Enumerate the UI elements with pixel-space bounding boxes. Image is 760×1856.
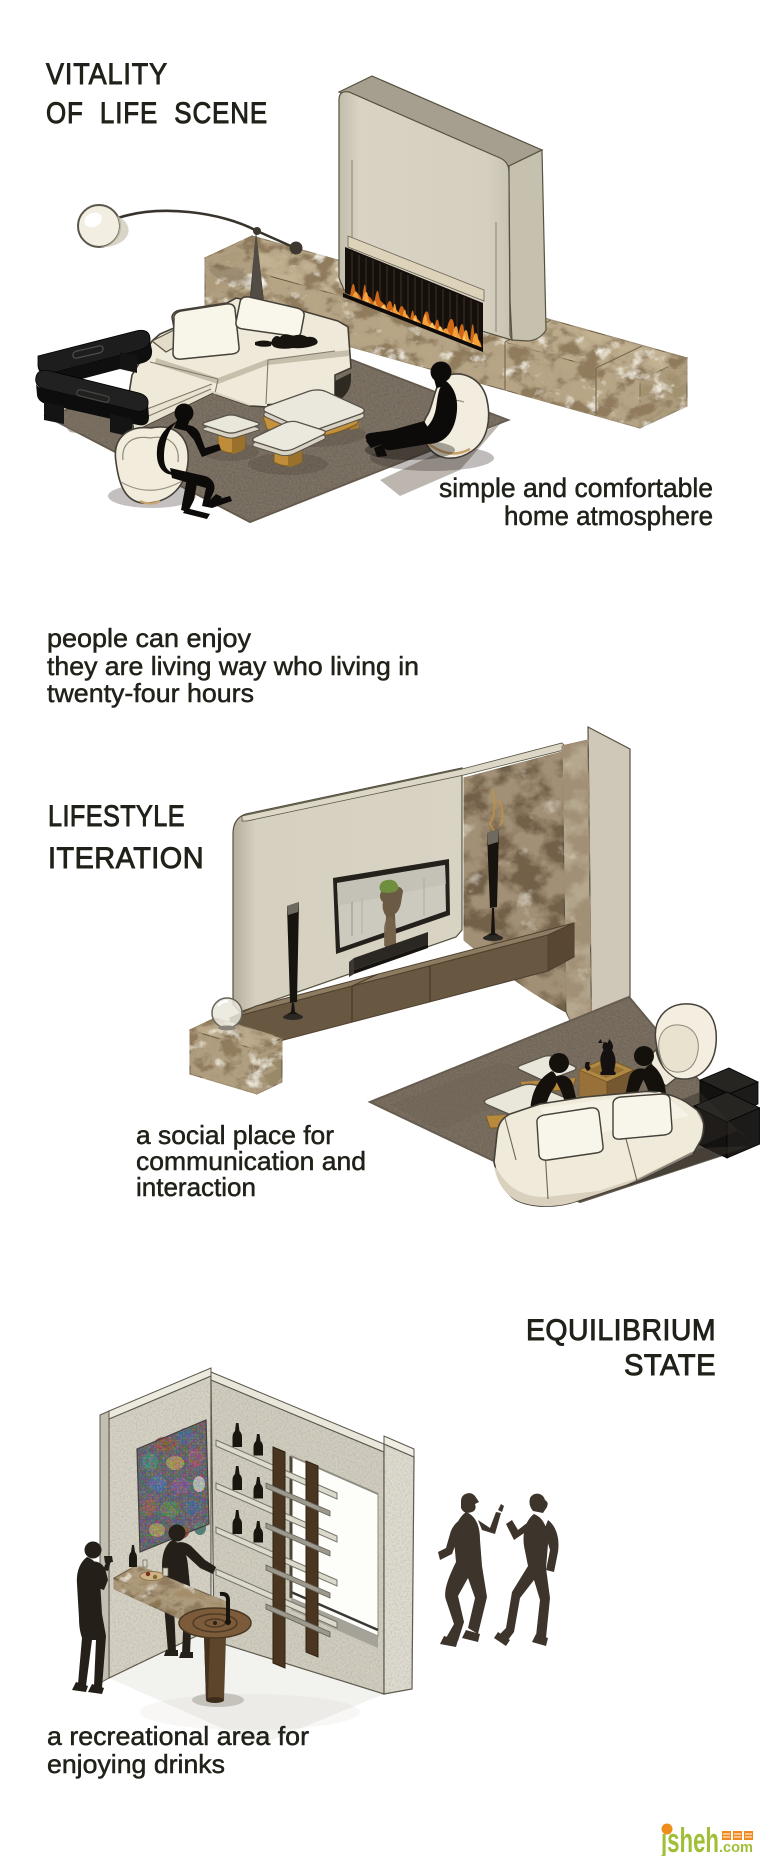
- svg-text:they are living way who living: they are living way who living in: [47, 651, 419, 681]
- svg-text:EQUILIBRIUM: EQUILIBRIUM: [526, 1314, 716, 1347]
- svg-text:a recreational area for: a recreational area for: [47, 1721, 309, 1751]
- svg-text:home atmosphere: home atmosphere: [504, 501, 713, 531]
- svg-text:LIFESTYLE: LIFESTYLE: [48, 800, 185, 833]
- svg-text:enjoying drinks: enjoying drinks: [47, 1749, 225, 1779]
- svg-text:.com: .com: [719, 1839, 753, 1856]
- svg-text:twenty-four hours: twenty-four hours: [47, 678, 254, 708]
- svg-text:interaction: interaction: [136, 1172, 256, 1202]
- svg-text:ITERATION: ITERATION: [48, 842, 204, 875]
- svg-text:people can enjoy: people can enjoy: [47, 623, 251, 653]
- svg-text:VITALITY: VITALITY: [46, 58, 168, 91]
- svg-text:simple and comfortable: simple and comfortable: [439, 473, 713, 503]
- svg-text:STATE: STATE: [624, 1349, 716, 1382]
- svg-text:OF LIFE SCENE: OF LIFE SCENE: [46, 97, 268, 130]
